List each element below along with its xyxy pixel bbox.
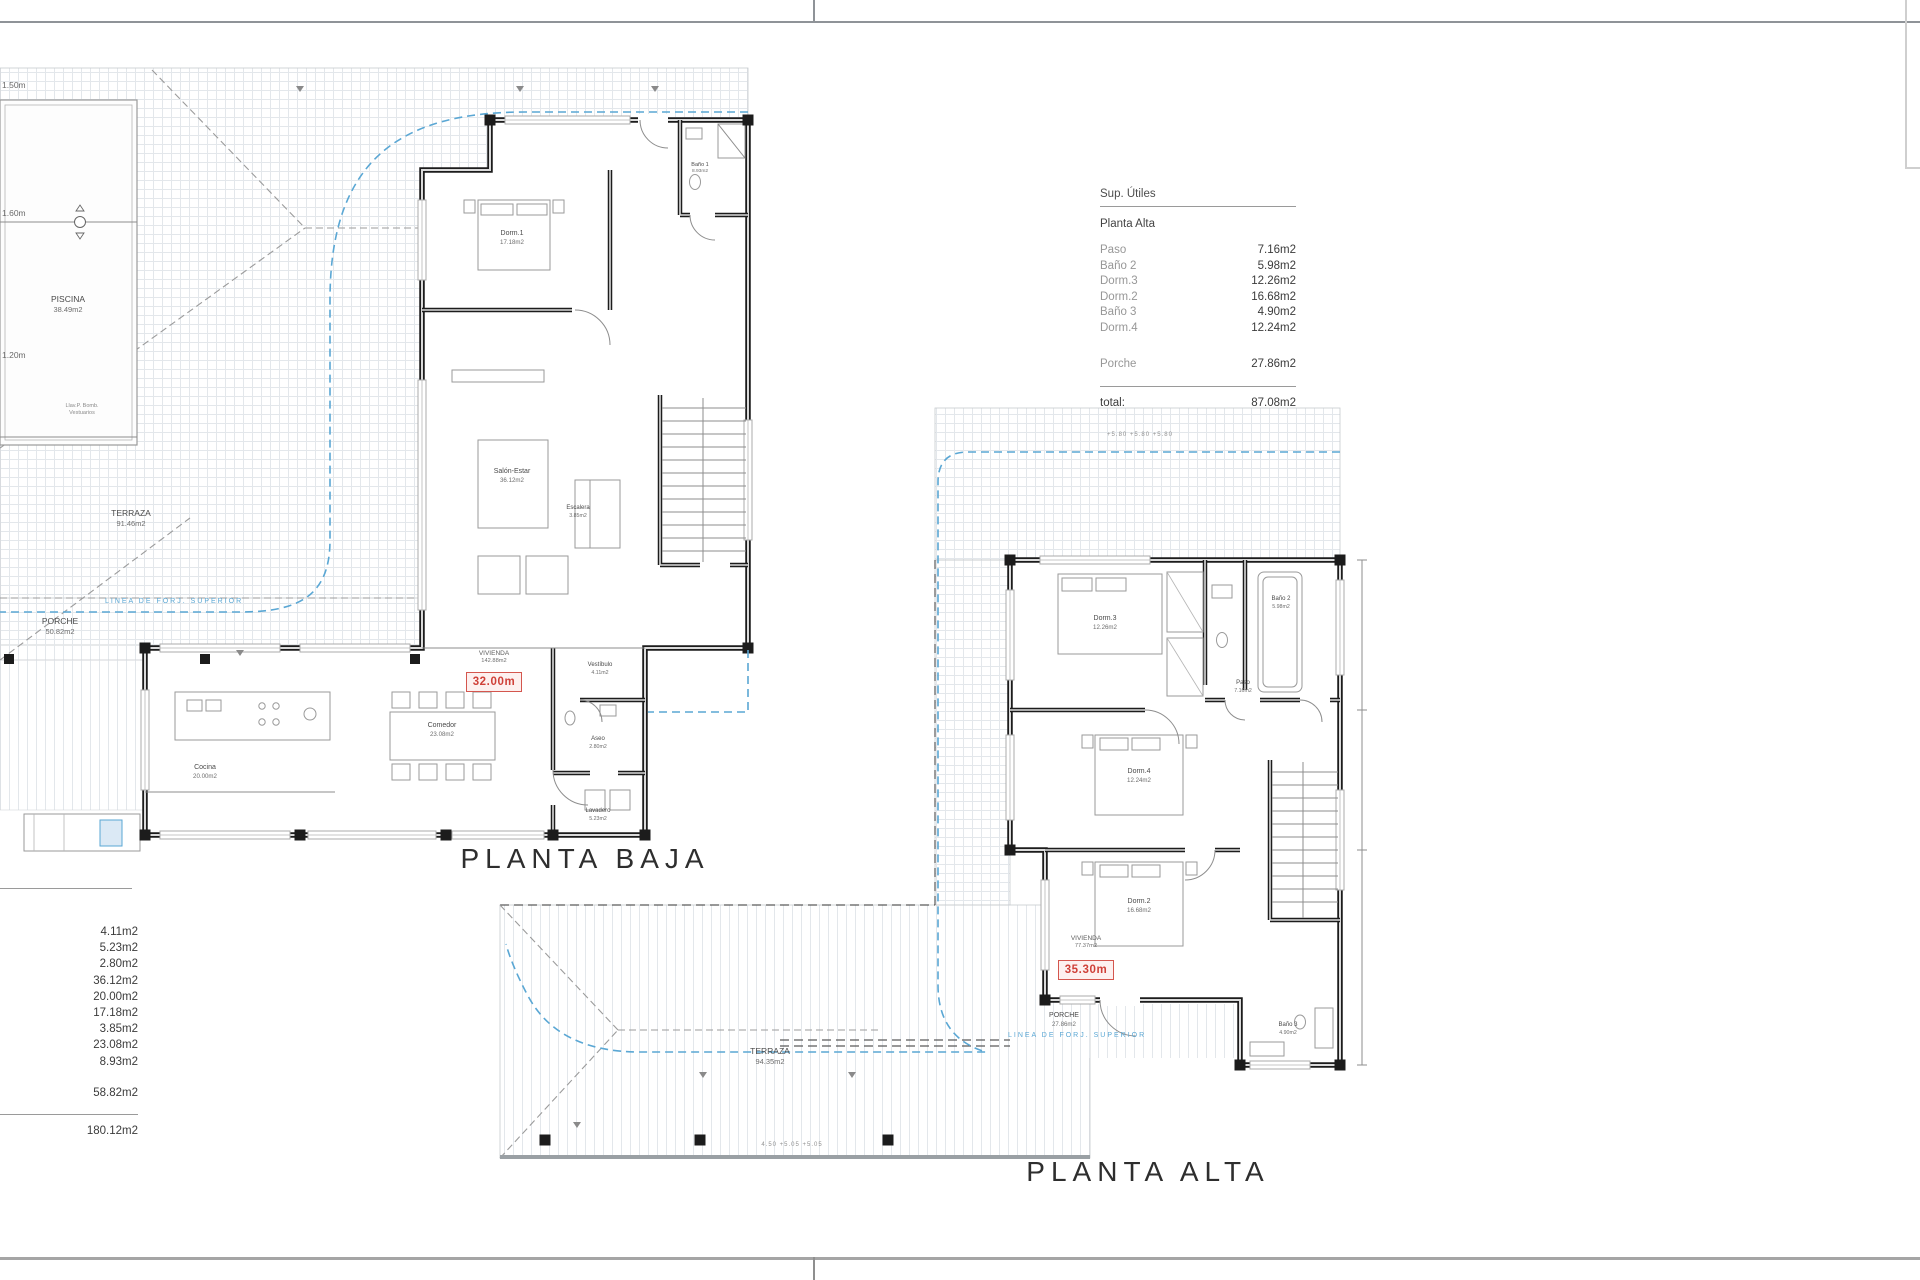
table-row: Dorm.216.68m2: [1100, 290, 1296, 306]
lavadero-label: Lavadero5.23m2: [585, 808, 610, 822]
bano2-label: Baño 25.98m2: [1271, 596, 1290, 610]
table-rule: [1100, 386, 1296, 387]
dim-120: 1.20m: [2, 350, 26, 360]
paso-label: Paso7.16m2: [1234, 680, 1252, 694]
cocina-label: Cocina20.00m2: [193, 764, 217, 780]
planta-baja-title: PLANTA BAJA: [460, 843, 709, 875]
floor-plan-linework: [0, 0, 1920, 1280]
table-value: 17.18m2: [0, 1005, 138, 1021]
linea-forjado-baja-label: LINEA DE FORJ. SUPERIOR: [105, 598, 243, 606]
dorm4-label: Dorm.412.24m2: [1127, 768, 1151, 784]
vivienda-baja-label: VIVIENDA142.88m2: [479, 650, 509, 665]
table-rule: [1100, 206, 1296, 207]
table-total: 180.12m2: [0, 1123, 138, 1139]
table-value: 8.93m2: [0, 1054, 138, 1070]
dorm2-label: Dorm.216.68m2: [1127, 898, 1151, 914]
sup-utiles-section: Planta Alta: [1100, 218, 1296, 230]
aseo-label: Aseo2.80m2: [589, 736, 607, 750]
planta-baja-plan: [0, 68, 754, 851]
table-subtotal: 58.82m2: [0, 1085, 138, 1101]
vivienda-baja-dimension: 32.00m: [466, 672, 522, 692]
table-total-row: total:87.08m2: [1100, 396, 1296, 412]
table-row: Baño 25.98m2: [1100, 259, 1296, 275]
dim-150: 1.50m: [2, 80, 26, 90]
pool-note: Llav.P. Bomb.Vestuarios: [65, 403, 98, 417]
table-row: Paso7.16m2: [1100, 243, 1296, 259]
table-value: 23.08m2: [0, 1037, 138, 1053]
table-value: 3.85m2: [0, 1021, 138, 1037]
bano1-label: Baño 18.93m2: [691, 162, 708, 175]
porche-alta-label: PORCHE27.86m2: [1049, 1012, 1079, 1028]
vivienda-alta-dimension: 35.30m: [1058, 960, 1114, 980]
table-value: 36.12m2: [0, 973, 138, 989]
planta-alta-title: PLANTA ALTA: [1026, 1156, 1269, 1188]
table-rule: [0, 888, 132, 889]
planta-baja-areas-table: 4.11m2 5.23m2 2.80m2 36.12m2 20.00m2 17.…: [0, 924, 138, 1139]
bano3-label: Baño 34.90m2: [1278, 1022, 1297, 1036]
table-value: 4.11m2: [0, 924, 138, 940]
dorm3-label: Dorm.312.26m2: [1093, 615, 1117, 631]
vivienda-alta-label: VIVIENDA77.37m2: [1071, 935, 1101, 950]
sup-utiles-title: Sup. Útiles: [1100, 188, 1296, 200]
comedor-label: Comedor23.08m2: [428, 722, 457, 738]
table-rule: [0, 1114, 138, 1115]
sup-utiles-table: Sup. Útiles Planta Alta Paso7.16m2 Baño …: [1100, 188, 1296, 412]
escalera-label: Escalera3.85m2: [566, 505, 589, 519]
table-row-porche: Porche27.86m2: [1100, 357, 1296, 373]
porche-baja-label: PORCHE50.82m2: [42, 616, 78, 636]
table-value: 20.00m2: [0, 989, 138, 1005]
dorm1-label: Dorm.117.18m2: [500, 230, 524, 246]
pool-label: PISCINA38.49m2: [51, 294, 85, 314]
table-row: Dorm.412.24m2: [1100, 321, 1296, 337]
dims-top-alta: +5.80 +5.80 +5.80: [1107, 432, 1173, 440]
table-value: 5.23m2: [0, 940, 138, 956]
salon-label: Salón-Estar36.12m2: [494, 468, 531, 484]
vestibulo-label: Vestíbulo4.11m2: [588, 662, 613, 676]
dim-160: 1.60m: [2, 208, 26, 218]
drawing-sheet: PISCINA38.49m2 1.50m 1.60m 1.20m Llav.P.…: [0, 0, 1920, 1280]
terraza-alta-label: TERRAZA94.35m2: [750, 1046, 790, 1066]
linea-forjado-alta-label: LINEA DE FORJ. SUPERIOR: [1008, 1032, 1146, 1040]
table-value: 2.80m2: [0, 956, 138, 972]
terraza-baja-label: TERRAZA91.46m2: [111, 508, 151, 528]
table-row: Dorm.312.26m2: [1100, 274, 1296, 290]
table-row: Baño 34.90m2: [1100, 305, 1296, 321]
dims-bottom-alta: 4.50 +5.05 +5.05: [761, 1142, 822, 1150]
